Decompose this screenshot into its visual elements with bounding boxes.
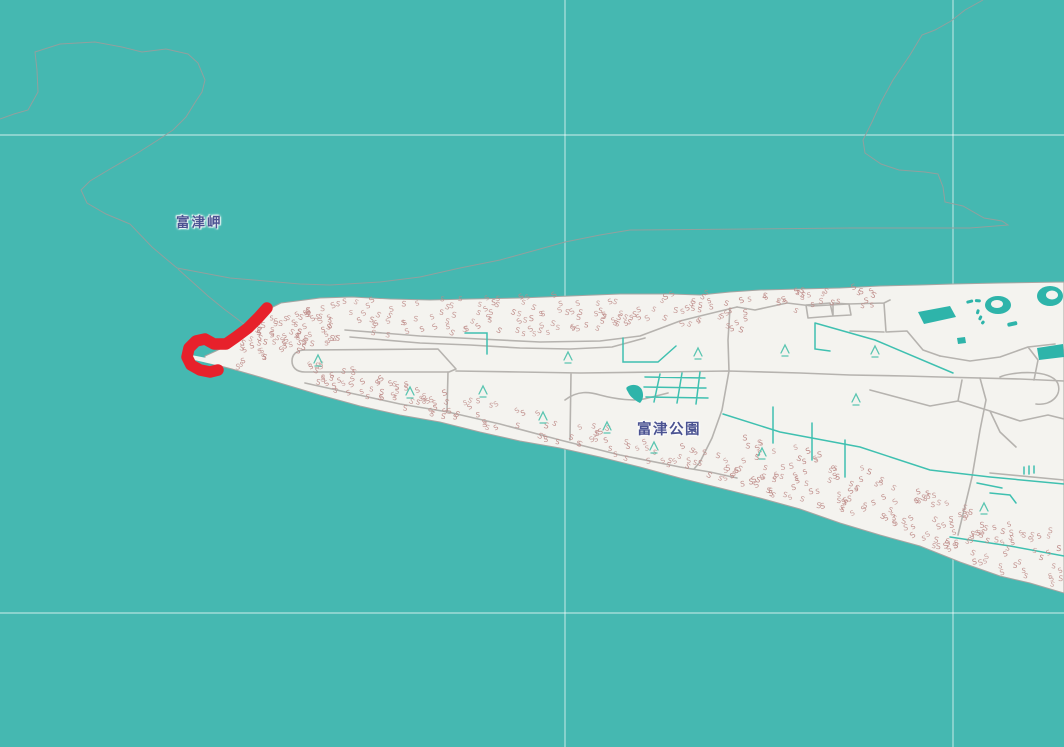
scrub-symbol: S <box>780 463 786 472</box>
place-label-futtsu-park: 富津公園 <box>637 418 701 439</box>
scrub-symbol: S <box>395 388 400 396</box>
place-label-futtsu-cape: 富津岬 <box>176 211 223 231</box>
scrub-symbol: S <box>235 362 240 371</box>
map-art: SSSSSSSSSSSSSSSSSSSSSSSSSSSSSSSSSSSSSSSS… <box>0 0 1064 747</box>
scrub-symbol: S <box>348 309 353 317</box>
pond-island <box>1046 291 1058 300</box>
scrub-symbol: S <box>704 289 708 297</box>
scrub-symbol: S <box>837 491 841 499</box>
scrub-symbol: S <box>529 313 534 323</box>
connector-road <box>447 372 448 412</box>
scrub-symbol: S <box>645 456 651 465</box>
pond-island <box>991 300 1003 308</box>
scrub-symbol: S <box>613 451 618 459</box>
scrub-symbol: S <box>817 449 823 459</box>
scrub-symbol: S <box>854 485 858 493</box>
scrub-symbol: S <box>324 338 329 347</box>
scrub-symbol: S <box>948 515 954 524</box>
scrub-symbol: S <box>600 316 605 325</box>
scrub-symbol: S <box>691 297 696 306</box>
scrub-symbol: S <box>540 309 545 318</box>
scrub-symbol: S <box>794 475 798 483</box>
scrub-symbol: S <box>720 312 725 320</box>
scrub-symbol: S <box>445 322 450 331</box>
scrub-symbol: S <box>810 301 815 309</box>
scrub-symbol: S <box>709 302 714 311</box>
map-canvas[interactable]: SSSSSSSSSSSSSSSSSSSSSSSSSSSSSSSSSSSSSSSS… <box>0 0 1064 747</box>
scrub-symbol: S <box>297 328 302 336</box>
water-feature <box>957 337 966 344</box>
connector-road <box>570 374 571 440</box>
scrub-symbol: S <box>1021 567 1026 575</box>
scrub-symbol: S <box>543 435 548 444</box>
scrub-symbol: S <box>270 326 274 334</box>
scrub-symbol: S <box>925 489 930 498</box>
scrub-symbol: S <box>342 297 347 306</box>
scrub-symbol: S <box>772 448 776 456</box>
scrub-symbol: S <box>475 410 480 419</box>
scrub-symbol: S <box>870 302 874 310</box>
scrub-symbol: S <box>958 511 962 519</box>
